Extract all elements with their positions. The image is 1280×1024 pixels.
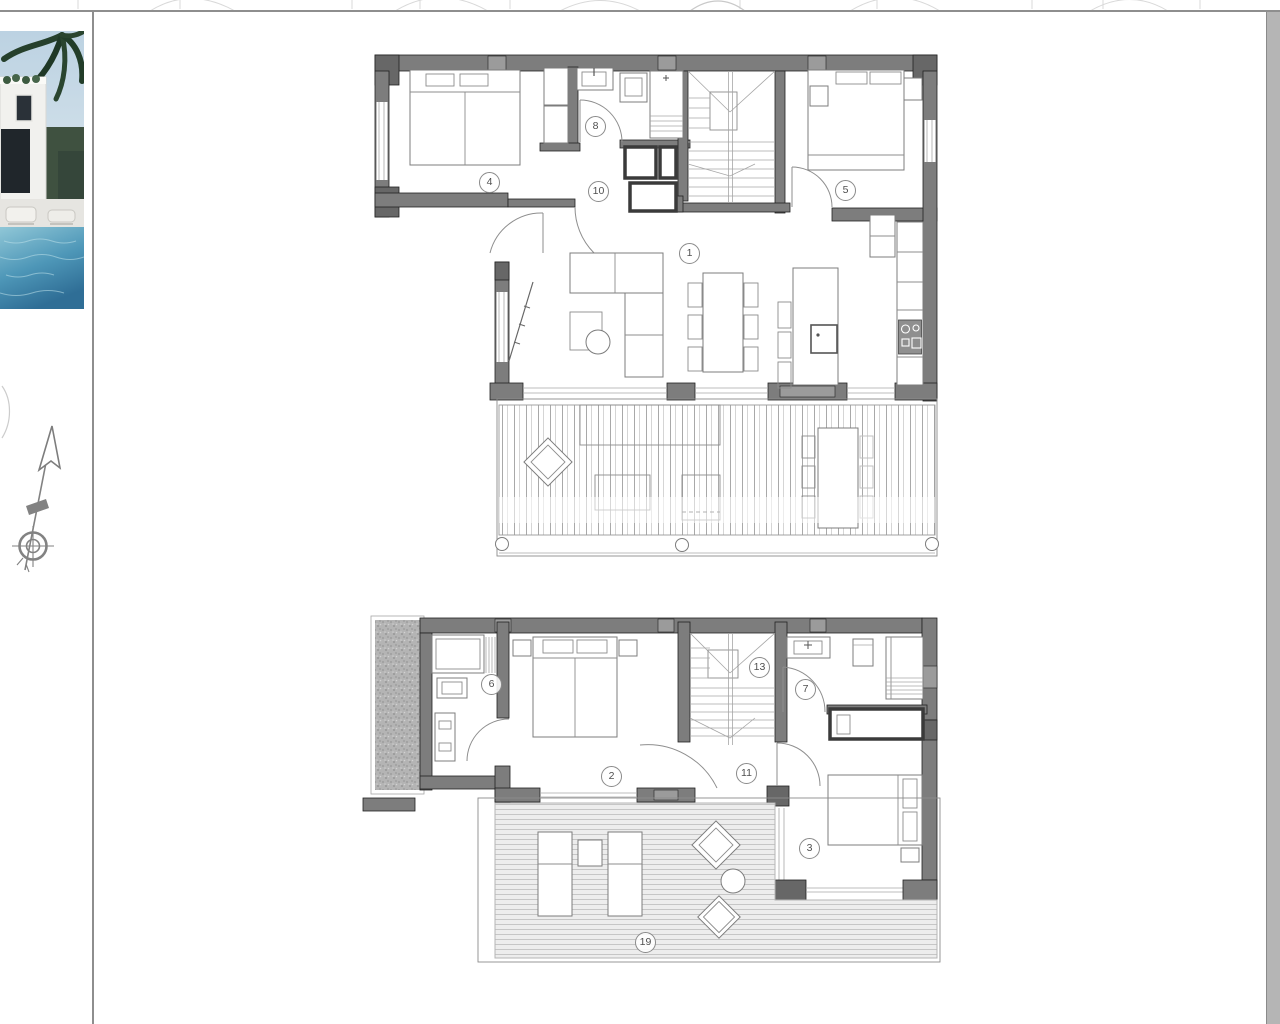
closet-boxes: [625, 147, 676, 211]
vertical-divider: [92, 10, 94, 1024]
bathroom-7: [783, 637, 923, 712]
arrow-head: [39, 426, 60, 470]
bench: [886, 637, 923, 699]
sofa: [570, 253, 663, 377]
kitchen-counter: [870, 215, 923, 385]
arrow-band: [26, 499, 49, 515]
villa-photo: [0, 31, 84, 309]
dining-table: [688, 273, 758, 372]
floor-plan-lower: [358, 588, 942, 988]
compass-rose: [12, 526, 54, 572]
bathroom-8: [577, 68, 683, 142]
staircase-upper: [688, 71, 775, 203]
kitchen-island: [778, 268, 838, 388]
coffee-table: [570, 312, 610, 354]
villa-building: [0, 74, 46, 201]
stove-icon: [899, 320, 922, 354]
north-arrow-icon: [2, 412, 72, 580]
bedroom-5: [792, 70, 922, 207]
terrace-upper: [496, 399, 939, 556]
gravel-strip: [371, 616, 424, 794]
bedroom-3: [828, 775, 922, 862]
top-rule: [0, 10, 1280, 12]
hall-11: [777, 743, 820, 786]
floor-plan-upper: [368, 42, 948, 567]
staircase-lower: [690, 633, 775, 745]
page-edge-strip: [1266, 12, 1280, 1024]
closet-room3: [830, 709, 923, 739]
